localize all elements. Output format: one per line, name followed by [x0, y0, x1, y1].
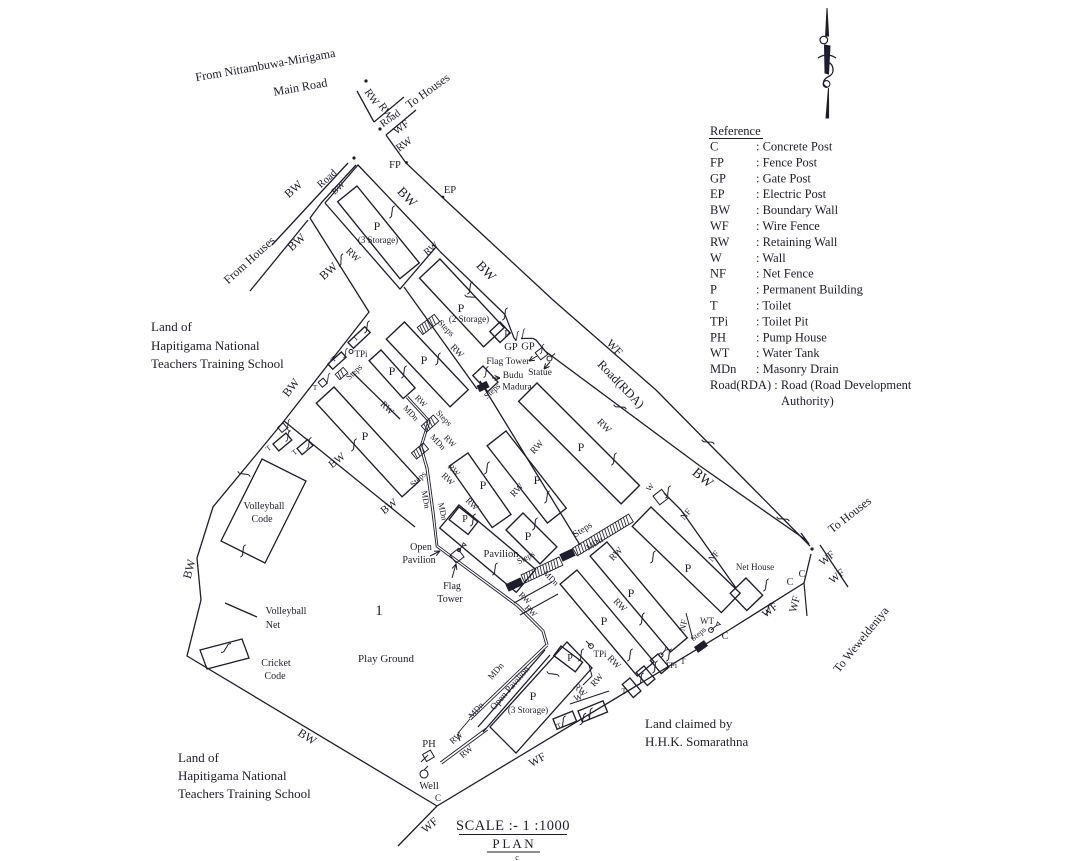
svg-text:P: P [462, 514, 468, 525]
svg-text:Volleyball: Volleyball [266, 606, 307, 617]
svg-text:: Pump House: : Pump House [756, 330, 827, 344]
svg-text:W: W [710, 251, 722, 265]
svg-text:P: P [685, 561, 692, 575]
svg-text:Land of: Land of [151, 319, 192, 334]
svg-text:P L A N: P L A N [492, 836, 534, 851]
svg-text:T: T [313, 383, 318, 392]
svg-text:(2 Storage): (2 Storage) [449, 314, 489, 324]
svg-text:WT: WT [700, 616, 714, 626]
svg-text:: Toilet: : Toilet [756, 299, 792, 313]
svg-text:Hapitigama National: Hapitigama National [178, 768, 287, 783]
svg-text:: Electric Post: : Electric Post [756, 187, 827, 201]
svg-text:T: T [710, 299, 718, 313]
svg-text:: Toilet Pit: : Toilet Pit [756, 314, 809, 328]
svg-text:P: P [578, 440, 585, 454]
svg-text:Teachers Training School: Teachers Training School [178, 786, 311, 801]
svg-text:Road(RDA) : Road (Road Develop: Road(RDA) : Road (Road Development [710, 378, 912, 392]
svg-text:C: C [799, 569, 806, 580]
svg-text:T: T [680, 656, 686, 666]
svg-text:: Net Fence: : Net Fence [756, 267, 814, 281]
svg-text:Pavilion: Pavilion [483, 549, 519, 560]
svg-text:TPi: TPi [665, 660, 678, 670]
svg-text:P: P [480, 478, 487, 492]
svg-text:Hapitigama National: Hapitigama National [151, 338, 260, 353]
svg-text:Tower: Tower [437, 594, 463, 605]
svg-text:c: c [515, 853, 519, 861]
svg-text:: Wall: : Wall [756, 251, 786, 265]
svg-text:T: T [621, 686, 627, 696]
svg-text:Code: Code [264, 671, 286, 682]
svg-text:: Gate Post: : Gate Post [756, 171, 811, 185]
svg-text:SCALE :- 1 :1000: SCALE :- 1 :1000 [456, 818, 570, 834]
svg-text:P: P [567, 653, 573, 664]
svg-text:Well: Well [419, 781, 439, 792]
svg-text:Volleyball: Volleyball [244, 501, 285, 512]
svg-text:Play Ground: Play Ground [358, 653, 414, 665]
svg-text:: Concrete Post: : Concrete Post [756, 140, 833, 154]
svg-text:C: C [787, 577, 794, 588]
svg-text:GP: GP [504, 342, 518, 353]
svg-text:P: P [362, 429, 369, 443]
svg-text:Land of: Land of [178, 750, 219, 765]
svg-text:P: P [534, 473, 541, 487]
svg-text:Net House: Net House [736, 562, 774, 572]
svg-text:Budu: Budu [503, 371, 524, 381]
svg-text:Net: Net [266, 620, 281, 631]
svg-text:P: P [628, 586, 635, 600]
svg-text:BW: BW [710, 203, 730, 217]
svg-text:: Permanent Building: : Permanent Building [756, 283, 864, 297]
svg-text:C: C [710, 140, 718, 154]
svg-text:C: C [435, 793, 441, 803]
svg-text:NF: NF [710, 267, 726, 281]
svg-text:EP: EP [710, 187, 725, 201]
svg-text:Reference: Reference [710, 124, 761, 138]
svg-text:PH: PH [422, 739, 436, 750]
svg-text:Teachers Training School: Teachers Training School [151, 356, 284, 371]
svg-text:EP: EP [444, 185, 456, 196]
svg-text:: Boundary Wall: : Boundary Wall [756, 203, 839, 217]
svg-text:Authority): Authority) [781, 394, 834, 408]
svg-text:FP: FP [389, 160, 401, 171]
svg-text:RW: RW [710, 235, 730, 249]
svg-text:Madura: Madura [502, 383, 532, 393]
svg-text:WT: WT [710, 346, 730, 360]
svg-text:FP: FP [710, 155, 724, 169]
svg-text:: Water Tank: : Water Tank [756, 346, 820, 360]
svg-text:P: P [458, 301, 465, 315]
svg-text:P: P [525, 529, 532, 543]
svg-text:P: P [389, 364, 396, 378]
svg-text:GP: GP [710, 171, 726, 185]
svg-text:P: P [601, 614, 608, 628]
svg-text:TPi: TPi [593, 649, 607, 659]
svg-text:1: 1 [375, 603, 383, 619]
svg-text:MDn: MDn [710, 362, 737, 376]
svg-text:(3 Storage): (3 Storage) [508, 705, 548, 715]
svg-text:Cricket: Cricket [261, 658, 291, 669]
svg-text:Flag Tower: Flag Tower [486, 357, 530, 367]
svg-text:Code: Code [251, 514, 273, 525]
svg-text:P: P [374, 219, 381, 233]
svg-text:C: C [722, 631, 729, 642]
svg-text:P: P [530, 689, 537, 703]
svg-text:H.H.K. Somarathna: H.H.K. Somarathna [645, 734, 748, 749]
svg-text:: Wire Fence: : Wire Fence [756, 219, 820, 233]
svg-text:: Fence Post: : Fence Post [756, 155, 818, 169]
svg-text:TPi: TPi [710, 314, 729, 328]
svg-text:: Retaining Wall: : Retaining Wall [756, 235, 838, 249]
svg-text:P: P [504, 329, 510, 340]
svg-text:(3 Storage): (3 Storage) [358, 235, 398, 245]
svg-text:Open: Open [410, 542, 432, 553]
svg-text:Land claimed by: Land claimed by [645, 716, 733, 731]
svg-text:P: P [421, 353, 428, 367]
svg-text:TPi: TPi [354, 349, 368, 359]
svg-text:PH: PH [710, 330, 726, 344]
svg-text:GP: GP [521, 342, 535, 353]
svg-text:WF: WF [710, 219, 729, 233]
svg-text:Statue: Statue [528, 368, 552, 378]
svg-text:: Masonry Drain: : Masonry Drain [756, 362, 839, 376]
svg-text:Flag: Flag [443, 581, 461, 592]
svg-text:Pavilion: Pavilion [402, 555, 435, 566]
svg-text:P: P [710, 283, 717, 297]
